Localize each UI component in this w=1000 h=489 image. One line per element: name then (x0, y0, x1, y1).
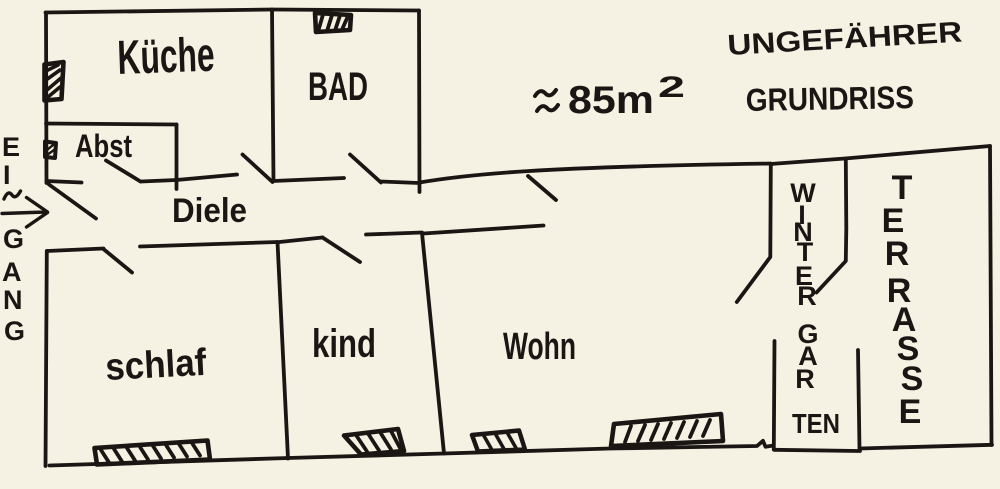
svg-text:kind: kind (312, 322, 376, 366)
svg-text:G: G (4, 316, 25, 346)
svg-text:85m: 85m (568, 79, 654, 122)
svg-text:R: R (885, 235, 910, 273)
svg-text:BAD: BAD (308, 65, 368, 109)
svg-text:G: G (3, 224, 24, 254)
svg-text:Abst: Abst (75, 128, 132, 164)
svg-text:A: A (2, 257, 22, 287)
svg-text:TEN: TEN (792, 408, 840, 439)
svg-text:Diele: Diele (172, 192, 247, 230)
svg-text:E: E (899, 393, 922, 431)
svg-text:R: R (797, 281, 817, 311)
svg-text:Küche: Küche (117, 29, 216, 85)
svg-text:schlaf: schlaf (104, 342, 207, 389)
svg-text:2: 2 (658, 71, 685, 104)
svg-text:UNGEFÄHRER: UNGEFÄHRER (727, 16, 964, 62)
svg-text:N: N (3, 285, 23, 315)
svg-text:GRUNDRISS: GRUNDRISS (746, 79, 915, 118)
svg-text:E: E (2, 132, 20, 162)
svg-text:Wohn: Wohn (503, 326, 576, 368)
svg-text:R: R (795, 364, 815, 394)
